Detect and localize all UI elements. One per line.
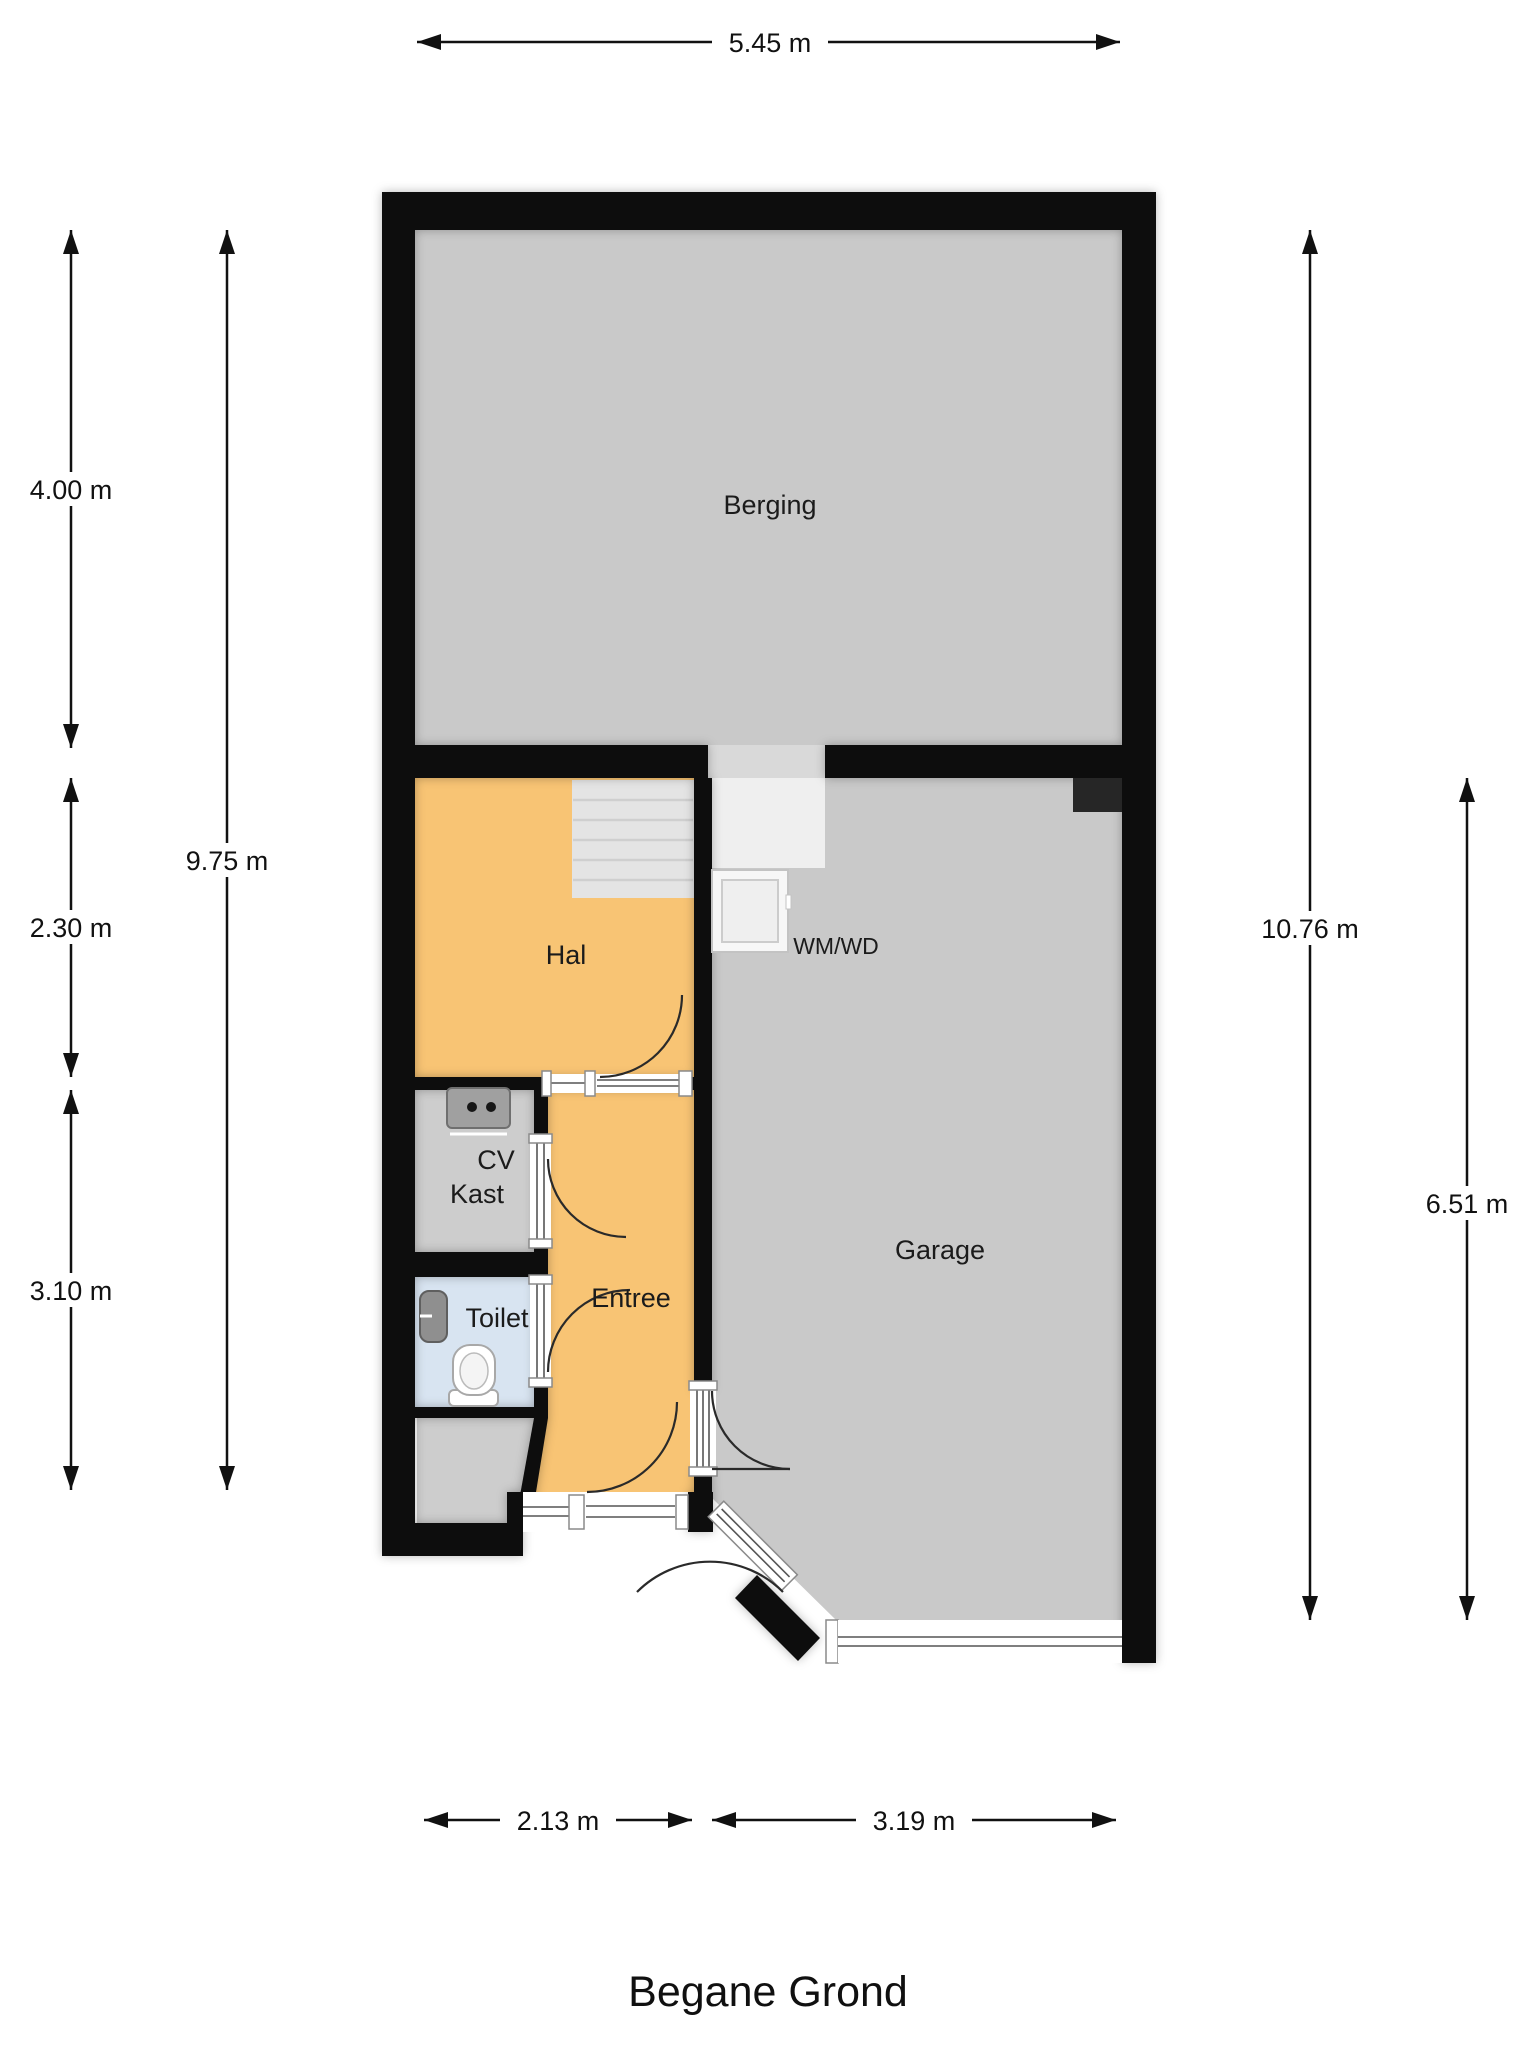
- dim-left-310: 3.10 m: [11, 1090, 131, 1490]
- jamb: [826, 1620, 838, 1663]
- dim-bottom-319-label: 3.19 m: [873, 1806, 956, 1836]
- dim-left-230: 2.30 m: [11, 778, 131, 1077]
- garage-label: Garage: [895, 1235, 985, 1265]
- wall-vestibule-bottom: [382, 1523, 523, 1556]
- dim-right-1076-label: 10.76 m: [1261, 914, 1359, 944]
- floorplan-svg: Berging Hal CV Kast Toilet Entree Garage…: [0, 0, 1536, 2048]
- wall-berging-divider-left: [415, 745, 708, 778]
- entree-label: Entree: [591, 1283, 671, 1313]
- toilet-icon: [449, 1345, 498, 1406]
- front-door-opening: [584, 1492, 677, 1532]
- berging-label: Berging: [723, 490, 816, 520]
- dim-top: 5.45 m: [417, 25, 1120, 59]
- wall-right: [1122, 192, 1156, 1663]
- dim-top-label: 5.45 m: [729, 28, 812, 58]
- dim-left-400-label: 4.00 m: [30, 475, 113, 505]
- wall-top: [382, 192, 1156, 230]
- jamb: [585, 1071, 595, 1096]
- wall-entree-bottom-left: [507, 1492, 523, 1532]
- dim-bottom-213: 2.13 m: [424, 1803, 692, 1837]
- dim-left-310-label: 3.10 m: [30, 1276, 113, 1306]
- dim-left-975-label: 9.75 m: [186, 846, 269, 876]
- hal-label: Hal: [546, 940, 587, 970]
- jamb: [529, 1134, 552, 1143]
- wall-left: [382, 192, 415, 1556]
- jamb: [689, 1381, 717, 1390]
- dim-right-651: 6.51 m: [1407, 778, 1527, 1620]
- dim-left-230-label: 2.30 m: [30, 913, 113, 943]
- jamb: [679, 1071, 692, 1096]
- jamb: [569, 1495, 584, 1529]
- wall-entree-bottom-right: [688, 1492, 713, 1532]
- dim-left-400: 4.00 m: [11, 230, 131, 748]
- wall-cv-toilet: [415, 1252, 548, 1277]
- wall-toilet-bottom: [415, 1407, 548, 1418]
- wm-wd-label: WM/WD: [793, 933, 879, 959]
- stair-passage: [708, 745, 825, 778]
- jamb: [529, 1378, 552, 1387]
- dim-bottom-319: 3.19 m: [712, 1803, 1116, 1837]
- toilet-label: Toilet: [465, 1303, 529, 1333]
- sink-icon: [420, 1291, 447, 1342]
- dim-right-651-label: 6.51 m: [1426, 1189, 1509, 1219]
- floor-title: Begane Grond: [0, 1968, 1536, 2017]
- entree-window: [523, 1492, 570, 1532]
- stair-landing: [712, 778, 825, 868]
- wall-berging-divider-right: [825, 745, 1122, 778]
- dim-bottom-213-label: 2.13 m: [517, 1806, 600, 1836]
- wall-hal-garage: [694, 778, 712, 1390]
- cv-label-line1: CV: [477, 1145, 515, 1175]
- cv-door-opening: [530, 1141, 551, 1241]
- dim-right-1076: 10.76 m: [1242, 230, 1378, 1620]
- duct-block: [1073, 778, 1122, 812]
- garage-window: [838, 1620, 1122, 1663]
- berging-floor: [415, 230, 1122, 745]
- dim-left-975: 9.75 m: [167, 230, 287, 1490]
- floorplan-canvas: Berging Hal CV Kast Toilet Entree Garage…: [0, 0, 1536, 2048]
- washer-icon: [712, 870, 791, 952]
- boiler-icon: [447, 1088, 510, 1134]
- jamb: [529, 1275, 552, 1284]
- cv-label-line2: Kast: [450, 1179, 505, 1209]
- jamb: [676, 1495, 688, 1529]
- jamb: [529, 1239, 552, 1248]
- jamb: [542, 1071, 551, 1096]
